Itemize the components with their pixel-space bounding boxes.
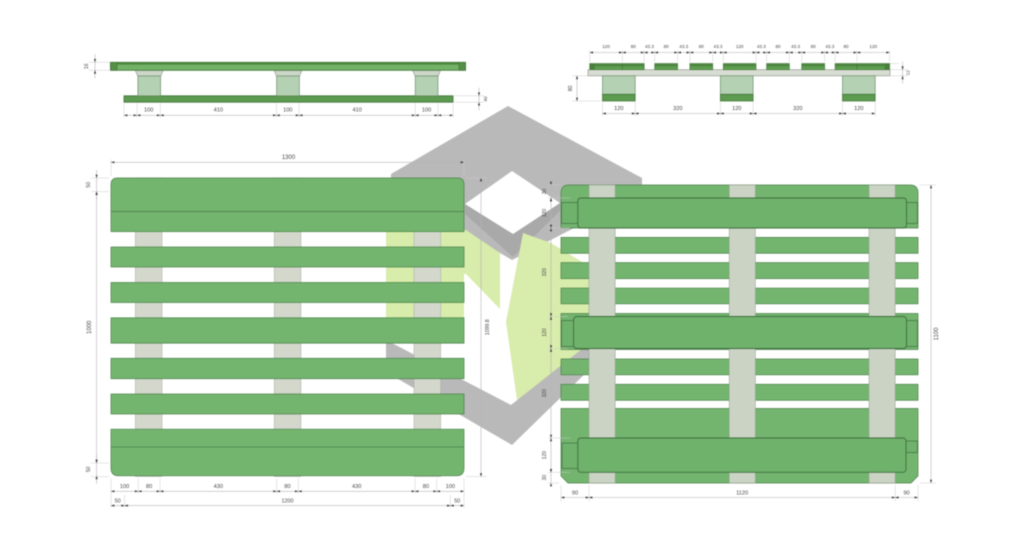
svg-text:1200: 1200 xyxy=(282,498,294,504)
svg-text:120: 120 xyxy=(854,106,863,112)
svg-text:1099.8: 1099.8 xyxy=(485,319,491,335)
svg-text:80: 80 xyxy=(146,484,152,490)
svg-text:80: 80 xyxy=(775,44,781,49)
svg-text:120: 120 xyxy=(542,209,548,218)
svg-text:120: 120 xyxy=(732,106,741,112)
svg-text:50: 50 xyxy=(454,498,460,504)
svg-text:50: 50 xyxy=(115,498,121,504)
svg-text:100: 100 xyxy=(283,108,292,114)
svg-text:410: 410 xyxy=(214,108,223,114)
svg-text:43.3: 43.3 xyxy=(679,44,688,49)
svg-text:30: 30 xyxy=(542,475,548,481)
svg-text:43.3: 43.3 xyxy=(757,44,766,49)
svg-text:1300: 1300 xyxy=(282,155,296,161)
svg-text:43.3: 43.3 xyxy=(791,44,800,49)
svg-text:80: 80 xyxy=(568,85,574,91)
svg-text:120: 120 xyxy=(614,106,623,112)
svg-text:120: 120 xyxy=(542,328,548,337)
svg-text:80: 80 xyxy=(423,484,429,490)
svg-text:100: 100 xyxy=(446,484,455,490)
svg-text:100: 100 xyxy=(422,108,431,114)
svg-text:100: 100 xyxy=(120,484,129,490)
svg-text:43.3: 43.3 xyxy=(714,44,723,49)
svg-text:80: 80 xyxy=(664,44,670,49)
svg-text:40: 40 xyxy=(483,96,488,102)
svg-text:80: 80 xyxy=(699,44,705,49)
svg-text:430: 430 xyxy=(214,484,223,490)
svg-text:80: 80 xyxy=(284,484,290,490)
svg-text:320: 320 xyxy=(542,389,548,398)
svg-text:80: 80 xyxy=(631,44,637,49)
svg-text:120: 120 xyxy=(542,451,548,460)
svg-text:120: 120 xyxy=(602,44,610,49)
svg-text:30: 30 xyxy=(542,189,548,195)
svg-text:320: 320 xyxy=(793,106,802,112)
svg-text:100: 100 xyxy=(144,108,153,114)
svg-text:120: 120 xyxy=(736,44,744,49)
svg-text:430: 430 xyxy=(352,484,361,490)
svg-text:50: 50 xyxy=(86,466,92,472)
svg-text:43.3: 43.3 xyxy=(825,44,834,49)
svg-text:320: 320 xyxy=(542,268,548,277)
svg-text:90: 90 xyxy=(572,491,578,497)
svg-text:320: 320 xyxy=(673,106,682,112)
svg-text:12: 12 xyxy=(906,70,911,75)
svg-text:50: 50 xyxy=(86,182,92,188)
svg-text:1100: 1100 xyxy=(934,327,940,341)
svg-text:1120: 1120 xyxy=(736,491,748,497)
svg-text:80: 80 xyxy=(843,44,849,49)
svg-text:90: 90 xyxy=(903,491,909,497)
svg-text:410: 410 xyxy=(352,108,361,114)
svg-text:16: 16 xyxy=(84,63,90,69)
svg-text:1000: 1000 xyxy=(87,320,93,334)
svg-text:80: 80 xyxy=(811,44,817,49)
svg-text:43.3: 43.3 xyxy=(645,44,654,49)
svg-text:120: 120 xyxy=(869,44,877,49)
